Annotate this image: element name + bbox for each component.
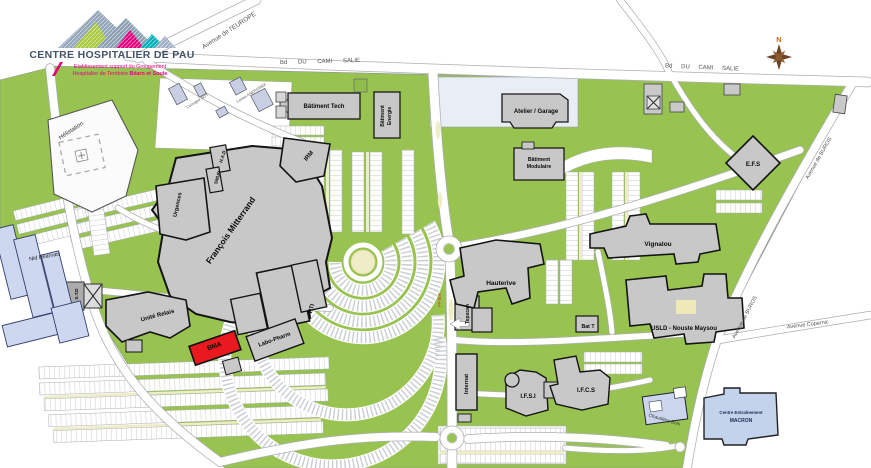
building-unite-relais-tail: [126, 340, 142, 352]
building-internat-tail: [458, 414, 471, 422]
logo-mountains-icon: [58, 10, 176, 48]
logo-subtitle-prefix: Hospitalier de Territoire: [73, 71, 130, 77]
logo-subtitle-bold: Béarn et Soule: [130, 71, 168, 77]
building-batiment-modulaire-notch: [522, 142, 534, 149]
label-ifsi: I.F.S.I: [520, 394, 536, 400]
label-batiment-modulaire-2: Modulaire: [527, 164, 552, 170]
compass-rose: N: [766, 35, 792, 70]
label-std: S.T.D: [74, 288, 79, 300]
label-centre-macron-1: Centre Entraînement: [719, 410, 763, 415]
label-bat-t: Bat T: [582, 324, 596, 330]
label-internat: Internat: [464, 374, 470, 394]
label-cami-salie-east: Bd DU CAMI SALIE: [665, 63, 739, 72]
label-batiment-energie-2: Energie: [387, 107, 393, 126]
label-road-marker: PP-805: [437, 292, 442, 307]
label-batiment-modulaire-1: Bâtiment: [528, 157, 550, 163]
label-centre-macron-2: MACRON: [730, 418, 753, 424]
campus-map-page: N CENTRE HOSPITALIER DE PAU Etablissemen…: [0, 0, 871, 468]
building-ifsi-lobe: [505, 373, 519, 387]
campus-map: N CENTRE HOSPITALIER DE PAU Etablissemen…: [0, 0, 871, 468]
building-hauterive-south: [472, 308, 492, 332]
label-batiment-tech: Bâtiment Tech: [304, 104, 345, 110]
utility-green-box: [354, 79, 367, 92]
logo-subtitle-line2: Hospitalier de Territoire Béarn et Soule: [73, 71, 168, 77]
logo-subtitle-line1: Etablissement support du Groupement: [74, 64, 167, 70]
building-south-wing: [231, 293, 268, 334]
label-hauterive: Hauterive: [486, 280, 516, 287]
label-vignalou: Vignalou: [644, 241, 671, 248]
building-usld-court: [676, 300, 696, 314]
building-centre-macron: [704, 388, 778, 445]
label-atelier-garage: Atelier / Garage: [514, 109, 559, 115]
label-usld: USLD - Nouste Maysou: [651, 326, 717, 332]
label-tepscan: Tepscan: [465, 304, 471, 324]
building-urgences: [156, 178, 210, 240]
label-efs: E.F.S: [746, 162, 760, 168]
label-ifcs: I.F.C.S: [577, 388, 595, 394]
logo-title: CENTRE HOSPITALIER DE PAU: [29, 49, 194, 61]
compass-north-label: N: [776, 35, 781, 44]
label-batiment-energie-1: Bâtiment: [380, 105, 386, 127]
